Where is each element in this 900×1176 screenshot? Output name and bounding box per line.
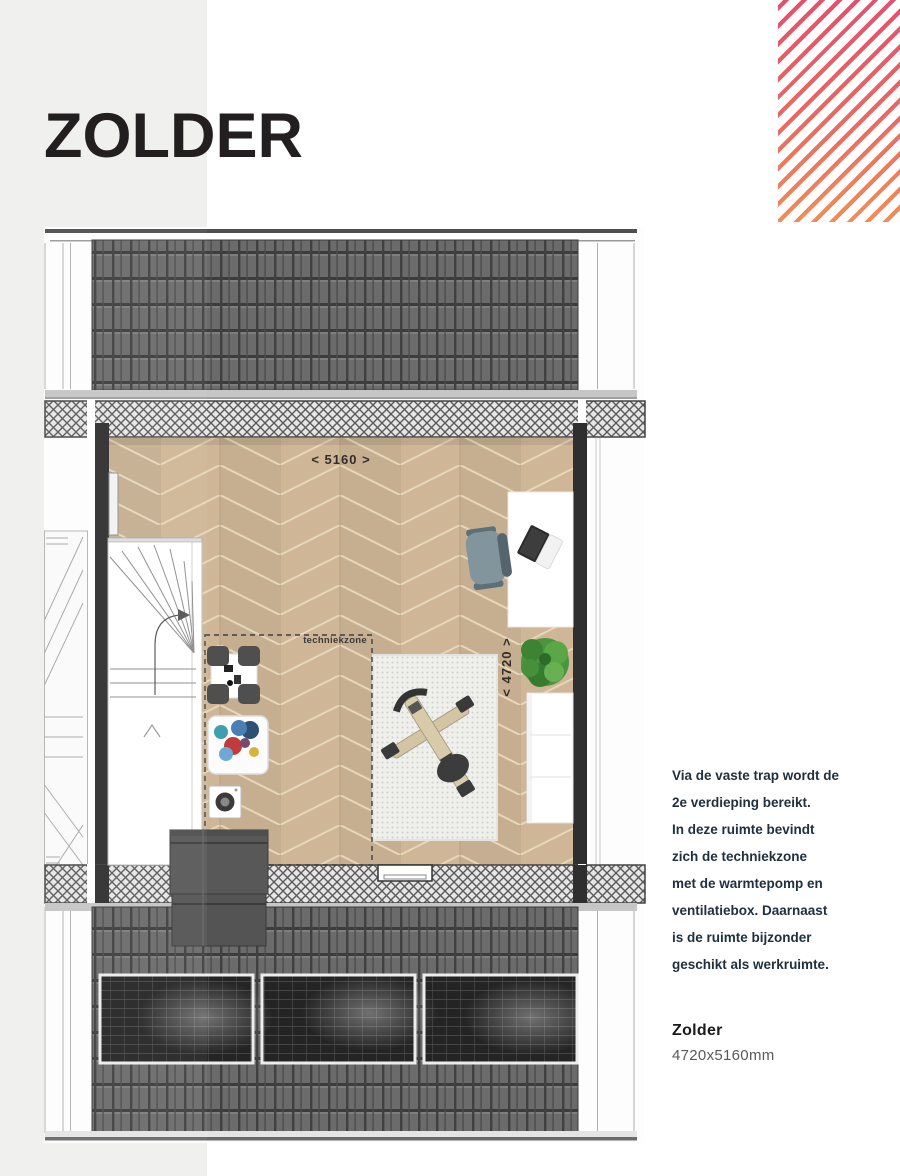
depth-dimension-label: < 4720 >	[499, 621, 517, 713]
description-line: In deze ruimte bevindt	[672, 816, 900, 843]
description-line: Via de vaste trap wordt de	[672, 762, 900, 789]
chair	[238, 646, 260, 666]
chair	[238, 684, 260, 704]
floor-plan-drawing	[40, 225, 648, 1147]
description-line: geschikt als werkruimte.	[672, 951, 900, 978]
diagonal-stripes-decoration	[778, 0, 900, 222]
chair	[207, 646, 229, 666]
laundry-basket	[208, 716, 268, 774]
techniekzone-label: techniekzone	[281, 635, 367, 646]
dining-table-set	[207, 646, 260, 704]
description-paragraph: Via de vaste trap wordt de 2e verdieping…	[672, 762, 900, 978]
description-line: met de warmtepomp en	[672, 870, 900, 897]
right-wall	[573, 423, 587, 868]
chair	[207, 684, 229, 704]
room-name: Zolder	[672, 1022, 723, 1040]
description-line: 2e verdieping bereikt.	[672, 789, 900, 816]
seam-overlay	[44, 227, 207, 1143]
description-line: zich de techniekzone	[672, 843, 900, 870]
description-line: is de ruimte bijzonder	[672, 924, 900, 951]
description-line: ventilatiebox. Daarnaast	[672, 897, 900, 924]
window-notch	[378, 865, 432, 881]
brochure-page: ZOLDER	[0, 0, 900, 1176]
room-dimensions: 4720x5160mm	[672, 1047, 775, 1064]
width-dimension-label: < 5160 >	[296, 452, 386, 467]
storage-cabinet	[527, 693, 573, 823]
floor-plan	[40, 225, 648, 1147]
washing-machine	[209, 786, 241, 818]
page-title: ZOLDER	[44, 100, 303, 172]
